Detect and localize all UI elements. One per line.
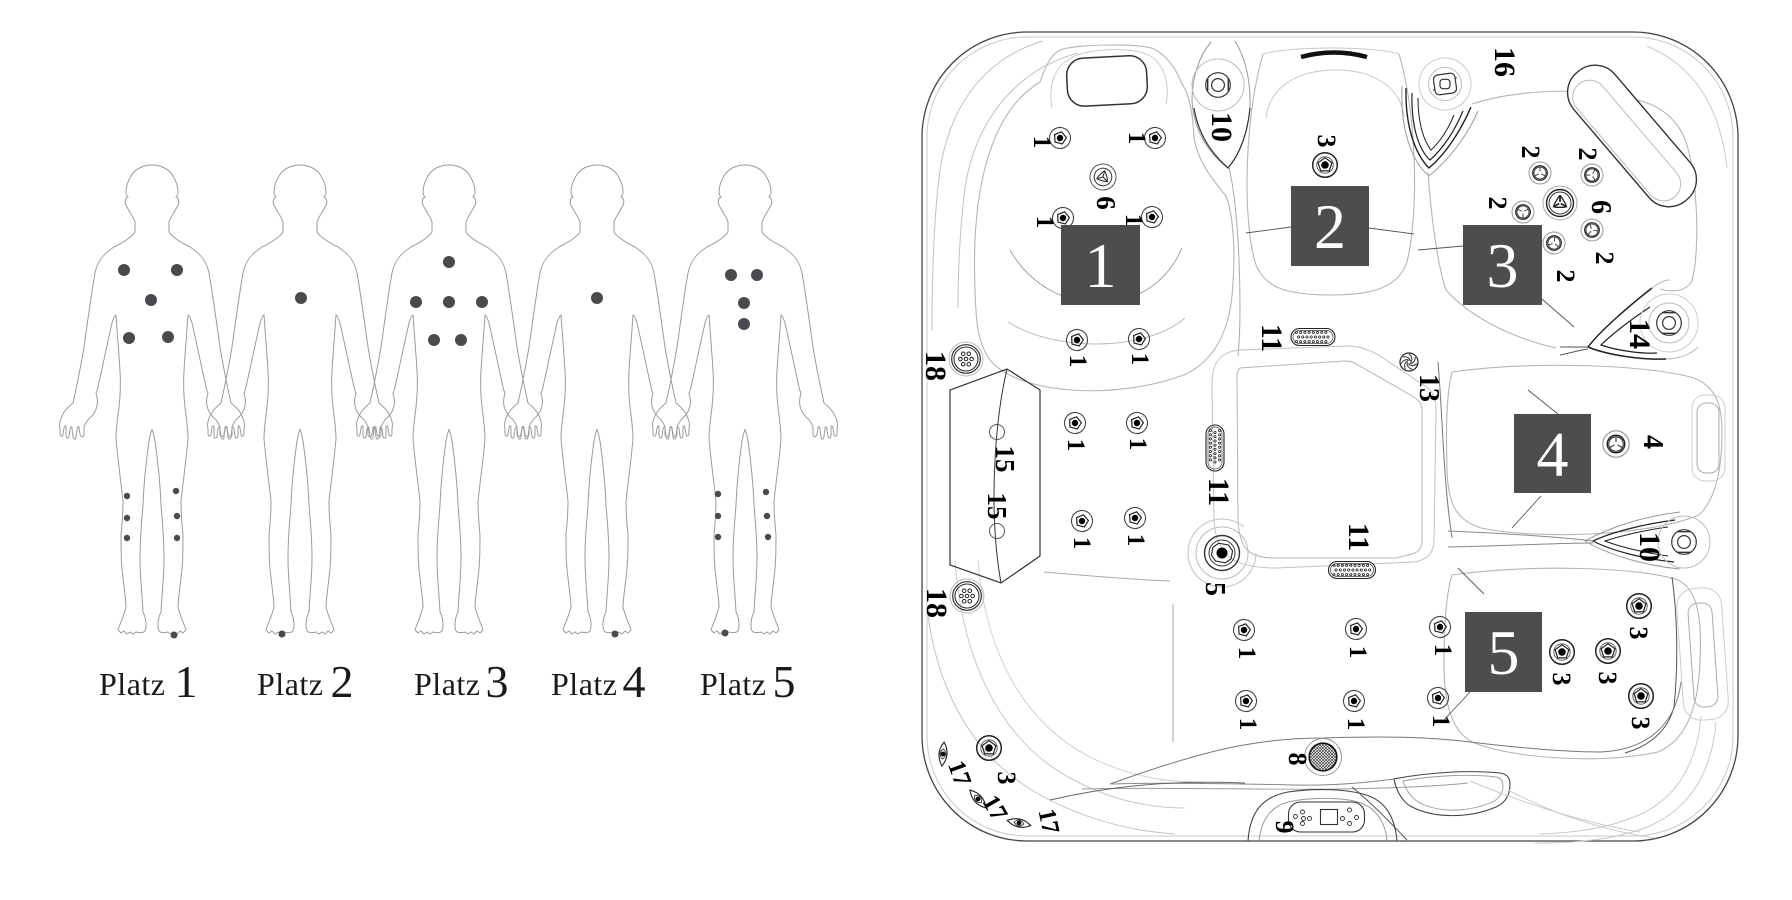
svg-text:18: 18 (919, 351, 952, 381)
svg-text:9: 9 (1270, 821, 1299, 834)
svg-text:3: 3 (1547, 673, 1576, 686)
svg-text:Platz: Platz (551, 666, 617, 702)
svg-text:1: 1 (1234, 718, 1261, 731)
svg-text:1: 1 (1028, 136, 1055, 149)
svg-text:2: 2 (1573, 148, 1602, 161)
svg-text:1: 1 (1123, 132, 1150, 145)
svg-text:1: 1 (1429, 644, 1456, 657)
svg-text:3: 3 (1487, 230, 1519, 301)
svg-text:5: 5 (773, 656, 796, 707)
svg-text:1: 1 (1126, 353, 1153, 366)
svg-text:1: 1 (1427, 715, 1454, 728)
svg-text:Platz: Platz (414, 666, 480, 702)
svg-text:6: 6 (1585, 200, 1616, 214)
svg-text:4: 4 (623, 656, 646, 707)
svg-text:1: 1 (1068, 537, 1095, 550)
svg-text:1: 1 (1062, 439, 1089, 452)
svg-text:1: 1 (1120, 214, 1147, 227)
svg-text:11: 11 (1342, 523, 1375, 551)
svg-text:5: 5 (1199, 582, 1230, 596)
svg-text:2: 2 (1551, 270, 1580, 283)
svg-text:1: 1 (1064, 355, 1091, 368)
svg-text:13: 13 (1413, 374, 1444, 402)
svg-text:3: 3 (1626, 717, 1655, 730)
svg-text:Platz: Platz (99, 666, 165, 702)
svg-text:1: 1 (1122, 534, 1149, 547)
svg-text:1: 1 (1342, 718, 1369, 731)
svg-text:2: 2 (1590, 252, 1619, 265)
svg-text:10: 10 (1205, 112, 1238, 142)
svg-text:18: 18 (920, 588, 953, 618)
svg-text:6: 6 (1091, 196, 1121, 210)
svg-text:14: 14 (1623, 319, 1656, 349)
svg-text:1: 1 (1233, 647, 1260, 660)
svg-text:3: 3 (992, 772, 1021, 785)
svg-text:16: 16 (1488, 47, 1521, 77)
svg-text:5: 5 (1488, 617, 1520, 688)
svg-text:15: 15 (990, 446, 1020, 473)
svg-text:1: 1 (175, 656, 198, 707)
svg-text:3: 3 (1593, 672, 1622, 685)
svg-text:1: 1 (1031, 216, 1058, 229)
svg-text:2: 2 (331, 656, 354, 707)
svg-text:3: 3 (1624, 627, 1653, 640)
svg-text:4: 4 (1637, 435, 1668, 449)
svg-text:3: 3 (486, 656, 509, 707)
svg-text:Platz: Platz (700, 666, 766, 702)
svg-text:1: 1 (1085, 230, 1117, 301)
svg-text:15: 15 (982, 493, 1012, 520)
svg-text:3: 3 (1312, 135, 1341, 148)
svg-text:8: 8 (1283, 753, 1312, 766)
svg-text:2: 2 (1483, 197, 1512, 210)
svg-text:11: 11 (1202, 478, 1235, 506)
svg-text:4: 4 (1537, 419, 1569, 490)
svg-text:11: 11 (1255, 324, 1288, 352)
svg-text:1: 1 (1124, 438, 1151, 451)
svg-text:2: 2 (1516, 146, 1545, 159)
svg-text:2: 2 (1314, 191, 1346, 262)
svg-text:1: 1 (1344, 646, 1371, 659)
svg-text:10: 10 (1633, 532, 1666, 562)
svg-text:Platz: Platz (257, 666, 323, 702)
